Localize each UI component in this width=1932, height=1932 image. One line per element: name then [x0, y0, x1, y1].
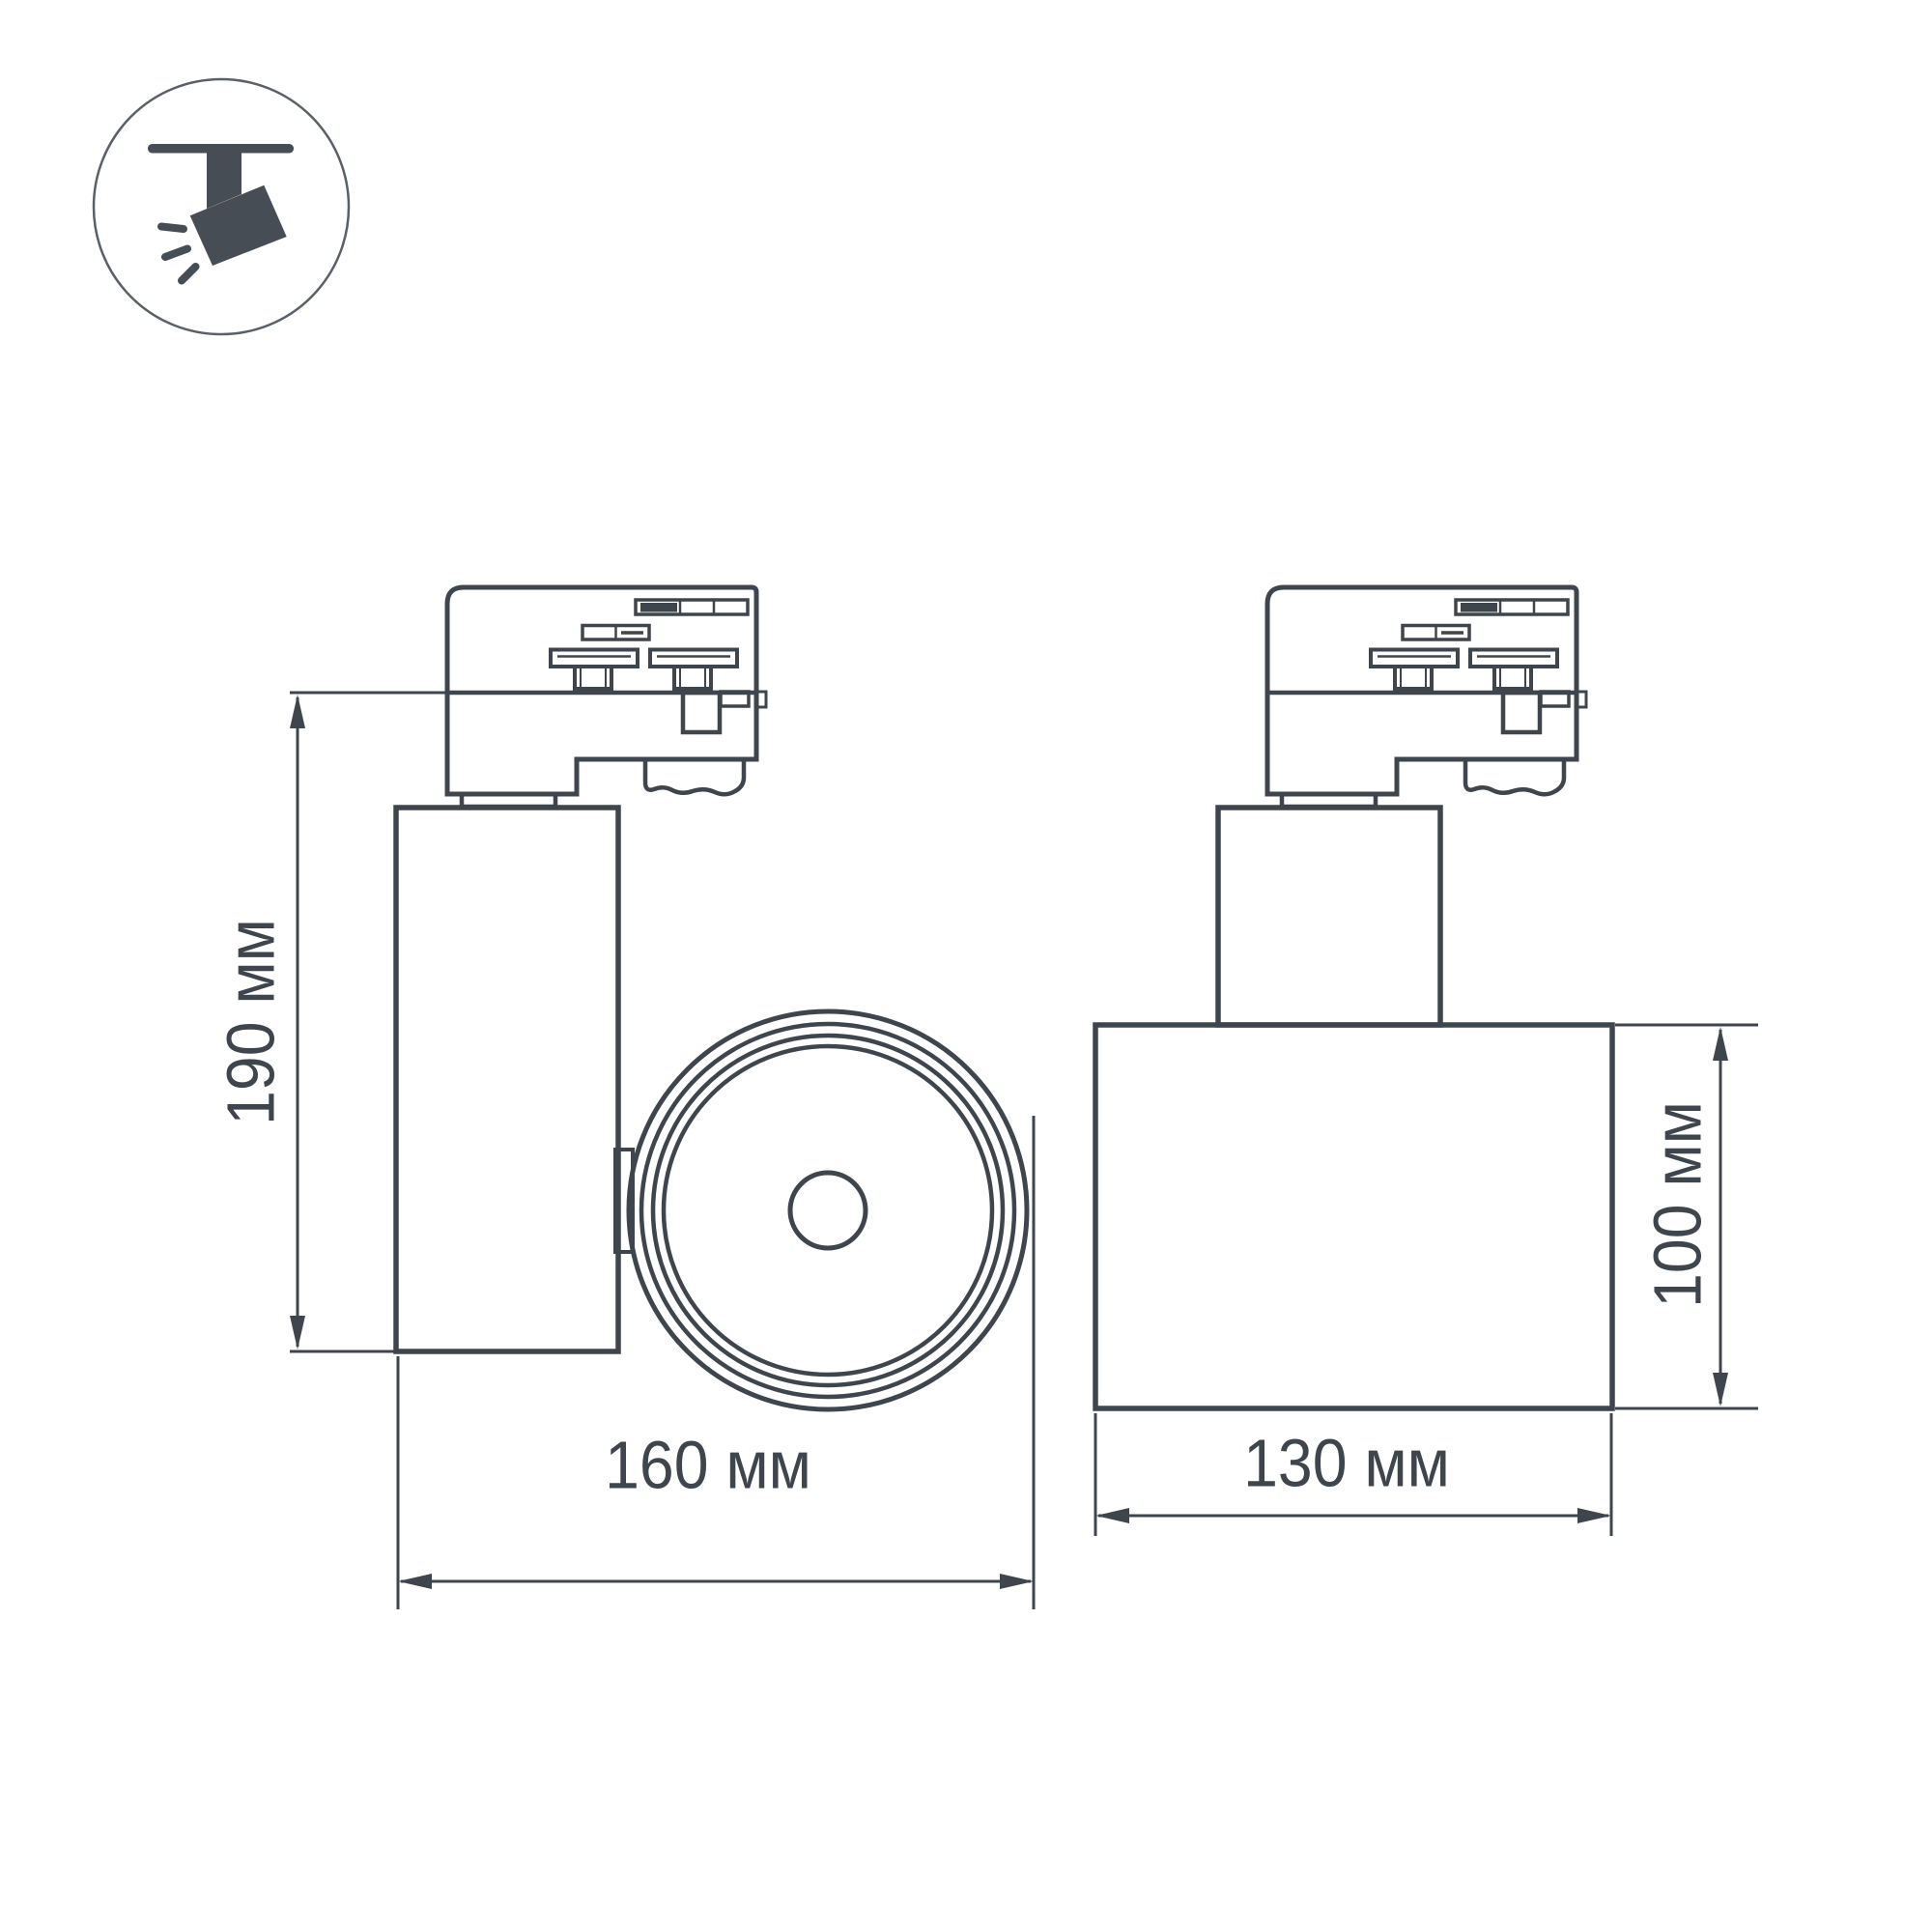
lens-front-face [629, 1011, 1027, 1409]
dimension-label-height-side: 190 мм [213, 919, 289, 1125]
icon-light-ray [161, 227, 184, 230]
lamp-neck-front-view [1218, 808, 1440, 1025]
track-adapter-side-view [447, 587, 766, 807]
side-view-drawing: 190 мм 160 мм [213, 587, 1034, 1609]
lamp-body-side-view [396, 808, 618, 1351]
track-adapter-front-view [1267, 587, 1586, 807]
arrowhead-right [1577, 1508, 1611, 1523]
front-view-drawing: 100 мм 130 мм [1095, 587, 1758, 1536]
icon-track-bar [148, 144, 294, 154]
dimension-label-width-side: 160 мм [605, 1428, 811, 1503]
lens-ring [664, 1046, 992, 1375]
arrowhead-left [1095, 1508, 1129, 1523]
drawing-page: 190 мм 160 мм 100 мм [0, 0, 1932, 1932]
lens-ring [653, 1036, 1003, 1385]
arrowhead-down [290, 1316, 305, 1350]
dimension-width-front: 130 мм [1095, 1413, 1611, 1536]
dimension-label-width-front: 130 мм [1243, 1426, 1450, 1501]
dimension-height-side: 190 мм [213, 693, 447, 1351]
icon-light-ray [165, 249, 187, 258]
icon-light-ray [182, 267, 196, 281]
category-icon [94, 79, 349, 334]
arrowhead-down [1713, 1373, 1728, 1406]
dimension-label-height-front: 100 мм [1640, 1101, 1716, 1308]
arrowhead-right [1000, 1574, 1034, 1589]
icon-lamp-head [190, 185, 287, 266]
lamp-body-front-view [1095, 1025, 1612, 1408]
technical-drawing: 190 мм 160 мм 100 мм [0, 0, 1932, 1932]
track-spotlight-icon [148, 144, 294, 281]
lens-ring [641, 1024, 1014, 1397]
arrowhead-up [1713, 1027, 1728, 1061]
lens-center-emitter [790, 1173, 866, 1248]
dimension-height-front: 100 мм [1615, 1025, 1758, 1408]
lens-outer-ring [629, 1011, 1027, 1409]
arrowhead-up [290, 695, 305, 728]
arrowhead-left [398, 1574, 432, 1589]
